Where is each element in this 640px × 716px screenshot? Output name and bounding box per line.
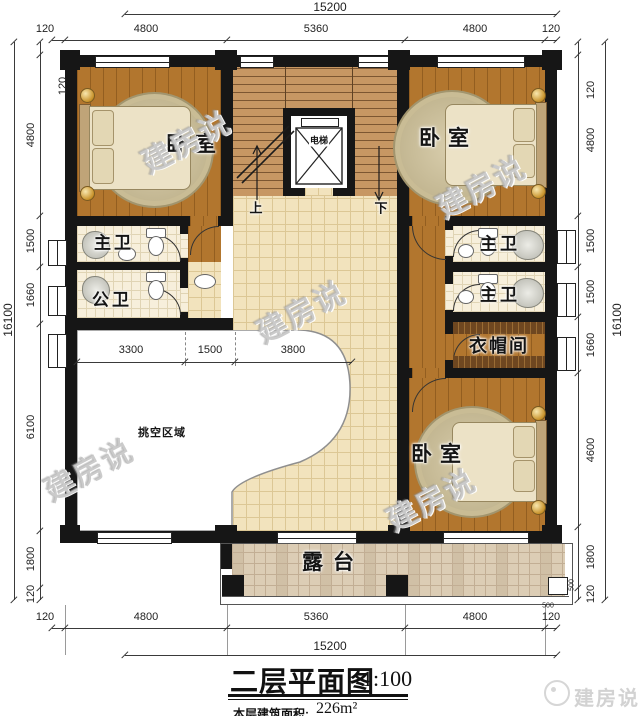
dim-left-0: 120	[57, 77, 69, 95]
dim-interior-2: 3800	[281, 344, 305, 356]
dim-line-bottom-segments	[52, 628, 557, 629]
wall-left-bath-divider	[65, 262, 180, 270]
pillow-tl-1	[92, 110, 114, 146]
pier-bottom-mid-left	[215, 525, 237, 543]
pier-bottom-right	[542, 525, 562, 543]
terrace-railing-inner-line	[222, 596, 569, 597]
dim-top-4: 120	[542, 23, 560, 35]
stair-down-label: 下	[374, 198, 387, 217]
dim-left-4: 6100	[25, 415, 37, 439]
room-label-master-bath-left: 主卫	[94, 229, 134, 254]
room-label-bedroom-tr: 卧室	[419, 122, 477, 152]
dim-interior-0: 3300	[119, 344, 143, 356]
bay-window-cloakroom	[557, 337, 576, 371]
bay-window-bath-l2	[48, 286, 67, 316]
dim-right-4: 1660	[585, 333, 597, 357]
pillow-tr-1	[513, 108, 535, 142]
dim-left-1: 4800	[25, 123, 37, 147]
window-void-south	[97, 532, 172, 544]
dim-right-2: 1500	[585, 229, 597, 253]
dim-right-7: 120	[585, 585, 597, 603]
door-gap-bath-l1	[180, 234, 188, 258]
dim-tick	[601, 596, 608, 603]
pillow-br-1	[513, 426, 535, 458]
lamp-br-2	[531, 500, 546, 515]
pier-top-mid-left	[215, 50, 237, 70]
bay-window-bath-l1	[48, 240, 67, 266]
pier-top-left	[60, 50, 80, 70]
dim-line-right-total	[605, 42, 606, 600]
lamp-tl-1	[80, 88, 95, 103]
dim-right-6: 1800	[585, 545, 597, 569]
door-gap-bedroom-br	[412, 368, 445, 378]
dim-right-0: 120	[585, 81, 597, 99]
wall-right-bath2-south	[445, 312, 557, 322]
floor-plan-canvas: 电梯 上 下	[0, 0, 640, 716]
dim-bottom-4: 120	[542, 611, 560, 623]
room-label-master-bath-r1: 主卫	[480, 230, 520, 255]
door-gap-bedroom-tl	[190, 216, 218, 226]
dim-right-3: 1500	[585, 280, 597, 304]
door-gap-bath-l2	[180, 288, 188, 312]
dim-interior-1: 1500	[198, 344, 222, 356]
dim-line-top-segments	[52, 40, 557, 41]
brand-logo-text: 建房说	[574, 682, 640, 711]
lamp-tl-2	[80, 186, 95, 201]
dim-bottom-1: 4800	[134, 611, 158, 623]
title-underline-thick	[228, 694, 408, 697]
area-note-label: 本层建筑面积:	[233, 705, 309, 716]
dim-tick	[574, 596, 581, 603]
door-gap-cloakroom	[445, 334, 453, 360]
room-label-master-bath-r2: 主卫	[480, 281, 520, 306]
dim-line-interior	[77, 362, 352, 363]
pillow-br-2	[513, 460, 535, 492]
dim-tick	[10, 596, 17, 603]
room-label-cloakroom: 衣帽间	[469, 332, 529, 358]
extension-line	[65, 605, 66, 655]
dim-bottom-2: 5360	[304, 611, 328, 623]
pier-bottom-left	[60, 525, 80, 543]
dim-tick	[553, 624, 560, 631]
pier-top-right	[542, 50, 562, 70]
dim-right-1: 4800	[585, 128, 597, 152]
dim-small-0: 500	[542, 603, 554, 610]
dim-left-5: 1800	[25, 547, 37, 571]
dim-top-1: 4800	[134, 23, 158, 35]
window-stair-north-right	[358, 56, 392, 68]
window-stair-north-left	[240, 56, 274, 68]
wall-right-bath-divider	[445, 262, 557, 272]
room-label-void-area: 挑空区域	[138, 424, 186, 440]
bay-window-bath-r2	[557, 283, 576, 317]
terrace-corner-column	[548, 577, 568, 595]
dim-right-5: 4600	[585, 438, 597, 462]
toilet-bowl-bath-l2	[148, 280, 164, 300]
stair-direction-marks	[233, 68, 397, 218]
window-bedroom-tl-north	[95, 56, 170, 68]
dim-tick	[553, 36, 560, 43]
dim-small-1: 500	[569, 579, 576, 591]
extension-line	[227, 605, 228, 655]
dim-tick	[553, 651, 560, 658]
dim-line-bottom-total	[125, 655, 557, 656]
dim-right-total: 16100	[610, 303, 624, 336]
dim-left-2: 1500	[25, 229, 37, 253]
brand-mascot-icon	[544, 680, 570, 706]
sink-vestibule	[194, 274, 216, 289]
bay-window-bath-r1	[557, 230, 576, 264]
door-gap-bedroom-tr	[412, 216, 445, 226]
dim-line-right-segments	[578, 42, 579, 600]
sink-bath-r2	[458, 290, 474, 304]
dim-bottom-3: 4800	[463, 611, 487, 623]
drawing-scale: 1:100	[362, 666, 412, 692]
window-bedroom-tr-north	[437, 56, 525, 68]
lamp-tr-1	[531, 88, 546, 103]
stair-up-label: 上	[249, 198, 262, 217]
lamp-tr-2	[531, 184, 546, 199]
dim-left-6: 120	[25, 585, 37, 603]
wall-void-north	[65, 318, 233, 330]
dim-bottom-0: 120	[36, 611, 54, 623]
sink-bath-r1	[458, 244, 474, 258]
pier-top-mid-right	[388, 50, 410, 70]
dim-tick	[553, 10, 560, 17]
dim-left-total: 16100	[1, 303, 15, 336]
floor-vestibule-left	[188, 262, 221, 324]
area-note-value: 226m²	[316, 700, 357, 716]
door-gap-bath-r2	[445, 284, 453, 310]
dim-top-2: 5360	[304, 23, 328, 35]
toilet-bowl-bath-l1	[148, 236, 164, 256]
dim-bottom-total: 15200	[313, 639, 346, 653]
extension-line	[405, 605, 406, 655]
dim-top-total: 15200	[313, 0, 346, 14]
lamp-br-1	[531, 406, 546, 421]
pillow-tl-2	[92, 148, 114, 184]
dim-tick	[36, 596, 43, 603]
dim-left-3: 1660	[25, 283, 37, 307]
dim-line-top-total	[125, 14, 557, 15]
bay-window-void-west	[48, 334, 67, 368]
room-label-public-bath: 公卫	[92, 286, 132, 311]
brand-mascot-eye	[551, 687, 556, 692]
dim-top-0: 120	[36, 23, 54, 35]
dim-top-3: 4800	[463, 23, 487, 35]
door-gap-bath-r1	[445, 230, 453, 256]
